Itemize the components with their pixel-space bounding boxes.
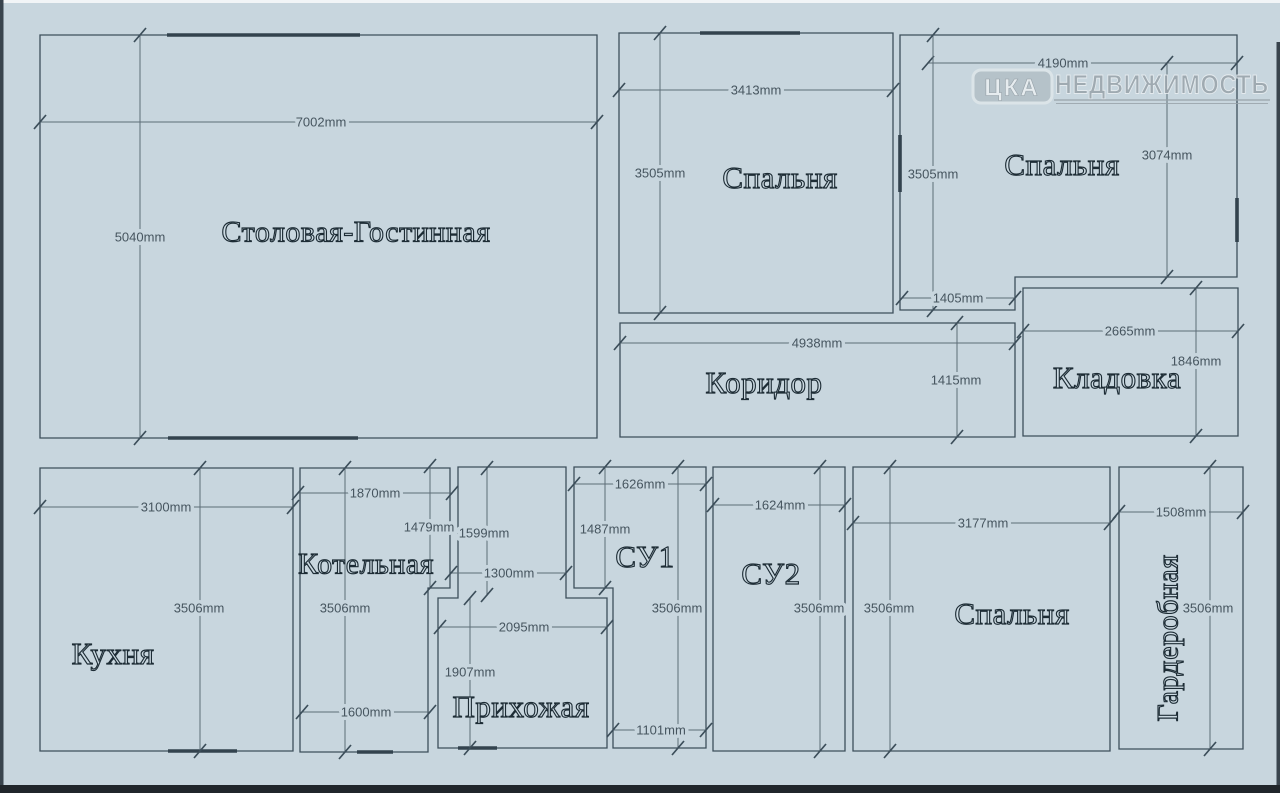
room-label-bedroom-bottom: Спальня <box>954 596 1069 631</box>
room-label-bedroom-top-middle: Спальня <box>722 160 837 195</box>
dim-boiler-bottom: 1600mm <box>341 705 392 720</box>
dim-su1-top: 1626mm <box>615 477 666 492</box>
dim-storage-width: 2665mm <box>1105 324 1156 339</box>
dim-hallway-lower-height: 1907mm <box>445 665 496 680</box>
dim-hallway-lower-width: 2095mm <box>499 620 550 635</box>
room-label-living: Столовая-Гостинная <box>222 216 491 249</box>
room-label-hallway: Прихожая <box>453 689 590 724</box>
dim-su2-height: 3506mm <box>794 601 845 616</box>
dim-living-width: 7002mm <box>296 115 347 130</box>
dim-hallway-upper-width: 1300mm <box>484 566 535 581</box>
sheet-edge-left <box>0 0 4 793</box>
dim-bedroom-tr-height-l: 3505mm <box>908 167 959 182</box>
floor-plan-sheet: 7002mm 5040mm 3413mm 3505mm 4190mm 3505m… <box>0 0 1280 793</box>
room-label-storage: Кладовка <box>1053 360 1181 395</box>
sheet-edge-bottom <box>0 785 1280 793</box>
room-label-kitchen: Кухня <box>72 636 155 671</box>
room-label-su1: СУ1 <box>615 539 674 574</box>
dim-bedroom-b-width: 3177mm <box>958 516 1009 531</box>
dim-bedroom-b-height: 3506mm <box>864 601 915 616</box>
dim-su1-left: 1487mm <box>580 522 631 537</box>
agency-watermark: ЦКА НЕДВИЖИМОСТЬ <box>973 69 1270 103</box>
dim-bedroom-tr-height-r: 3074mm <box>1142 148 1193 163</box>
dim-boiler-top: 1870mm <box>350 486 401 501</box>
dim-corridor-height: 1415mm <box>931 373 982 388</box>
dim-su1-bottom: 1101mm <box>636 723 686 738</box>
dim-wardrobe-height: 3506mm <box>1183 601 1234 616</box>
room-labels: Столовая-Гостинная Спальня Спальня Корид… <box>72 147 1185 724</box>
dim-su1-height: 3506mm <box>652 601 703 616</box>
room-label-bedroom-top-right: Спальня <box>1004 147 1119 182</box>
sheet-edges <box>0 0 1280 793</box>
dim-bedroom-tr-inset: 1405mm <box>933 291 984 306</box>
room-label-wardrobe: Гардеробная <box>1152 554 1185 721</box>
dim-boiler-right: 1479mm <box>404 520 455 535</box>
room-label-su2: СУ2 <box>741 556 800 591</box>
dim-bedroom-tm-width: 3413mm <box>731 83 782 98</box>
dim-bedroom-tm-height: 3505mm <box>635 166 686 181</box>
room-label-boiler: Котельная <box>298 548 434 581</box>
logo-badge-text: ЦКА <box>984 74 1040 101</box>
room-label-corridor: Коридор <box>706 365 823 400</box>
sheet-edge-right <box>1277 42 1280 793</box>
logo-name-text: НЕДВИЖИМОСТЬ <box>1055 69 1269 99</box>
sheet-edge-top <box>0 0 1280 3</box>
dim-wardrobe-width: 1508mm <box>1156 505 1207 520</box>
dim-boiler-height: 3506mm <box>320 601 371 616</box>
dim-su2-width: 1624mm <box>755 498 806 513</box>
floor-plan-drawing: 7002mm 5040mm 3413mm 3505mm 4190mm 3505m… <box>0 0 1280 793</box>
dim-bedroom-tr-width: 4190mm <box>1038 56 1089 71</box>
dim-kitchen-width: 3100mm <box>141 500 192 515</box>
dim-corridor-width: 4938mm <box>792 336 843 351</box>
dim-kitchen-height: 3506mm <box>174 601 225 616</box>
dim-living-height: 5040mm <box>115 230 166 245</box>
dim-hallway-upper-height: 1599mm <box>459 526 510 541</box>
